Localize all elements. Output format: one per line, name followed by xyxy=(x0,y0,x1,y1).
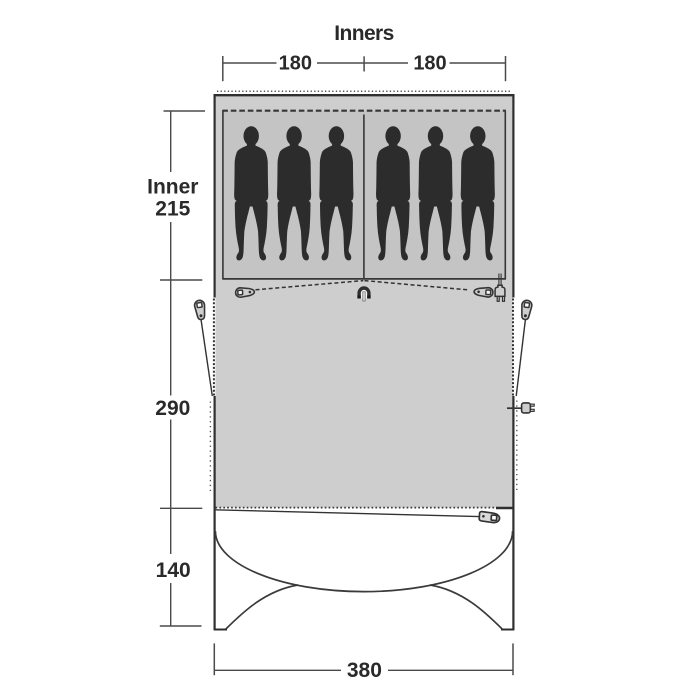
svg-text:290: 290 xyxy=(155,397,190,420)
svg-text:215: 215 xyxy=(155,198,190,221)
svg-text:180: 180 xyxy=(279,52,312,74)
svg-text:380: 380 xyxy=(347,659,382,682)
svg-text:140: 140 xyxy=(156,559,191,582)
svg-text:180: 180 xyxy=(413,52,446,74)
svg-text:Inners: Inners xyxy=(334,22,393,45)
svg-text:Inner: Inner xyxy=(147,176,198,199)
